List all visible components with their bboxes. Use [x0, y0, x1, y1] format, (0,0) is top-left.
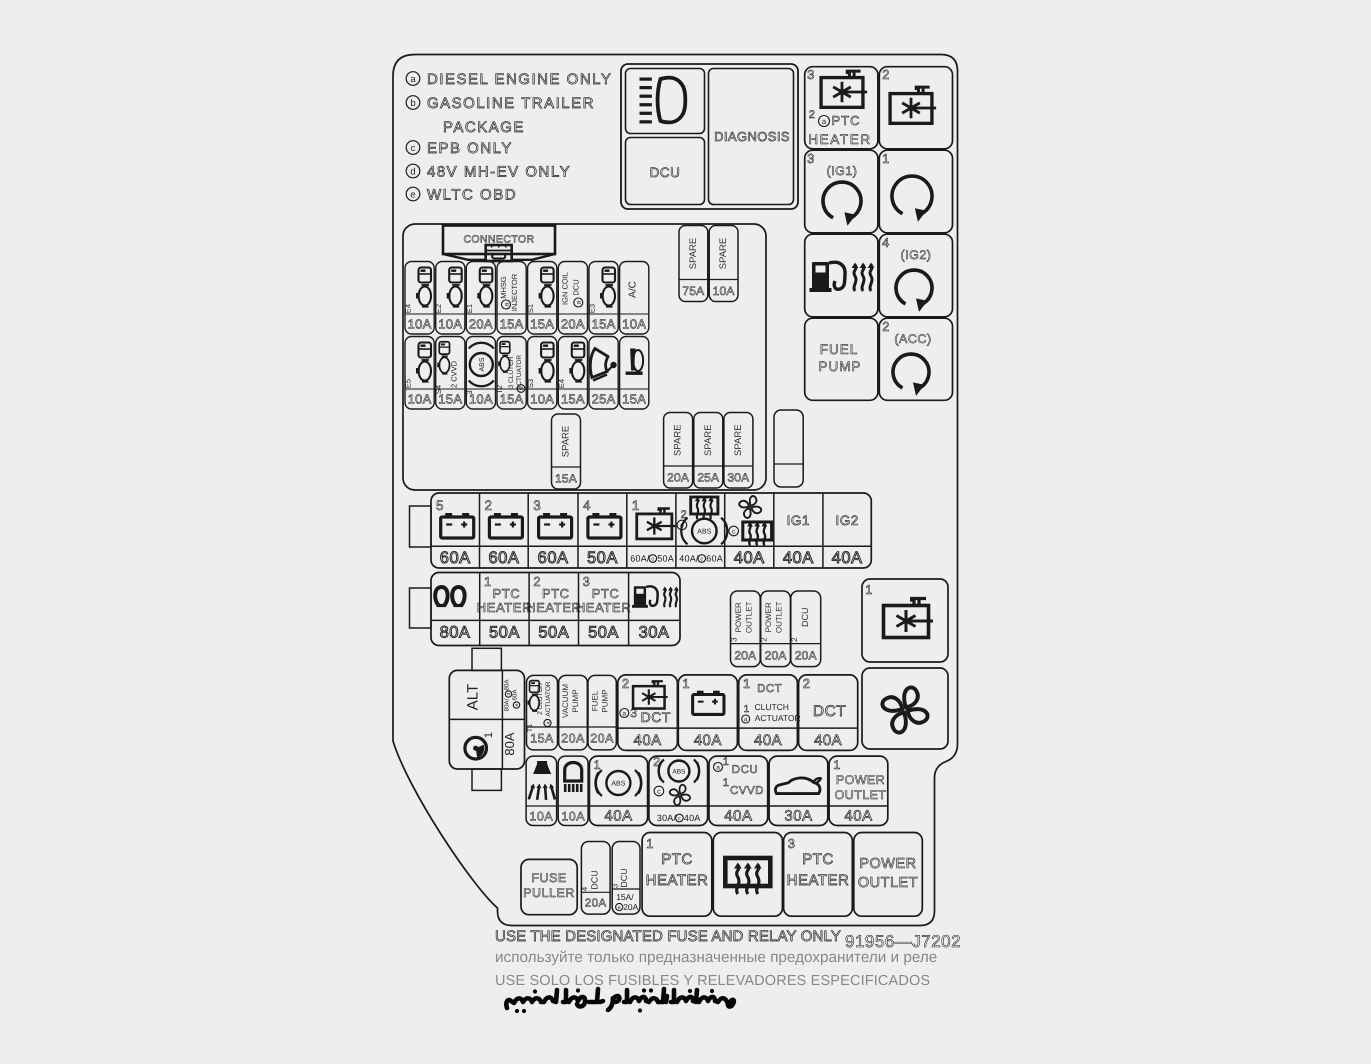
- svg-text:60A: 60A: [488, 549, 519, 567]
- svg-text:15A: 15A: [530, 317, 554, 332]
- svg-text:DCU: DCU: [571, 279, 580, 295]
- svg-text:IG1: IG1: [787, 513, 810, 528]
- svg-text:15A: 15A: [555, 472, 577, 486]
- svg-text:1: 1: [594, 758, 601, 772]
- svg-text:1: 1: [632, 498, 640, 513]
- svg-text:1: 1: [646, 836, 654, 851]
- svg-text:30A: 30A: [639, 624, 670, 642]
- svg-text:SPARE: SPARE: [733, 424, 744, 456]
- svg-text:20A: 20A: [561, 732, 585, 746]
- svg-text:40A: 40A: [783, 549, 814, 567]
- svg-text:HEATER: HEATER: [646, 872, 709, 889]
- svg-text:INJECTOR: INJECTOR: [510, 273, 519, 311]
- svg-text:CONNECTOR: CONNECTOR: [463, 234, 534, 246]
- svg-text:2: 2: [760, 637, 769, 642]
- svg-text:3 CLUTCH: 3 CLUTCH: [508, 356, 515, 388]
- svg-text:MHSG: MHSG: [499, 276, 508, 299]
- svg-text:3: 3: [465, 390, 474, 395]
- svg-text:DCT: DCT: [757, 683, 782, 695]
- svg-text:CLUTCH: CLUTCH: [754, 702, 788, 712]
- svg-text:25A: 25A: [697, 471, 719, 485]
- svg-text:30A/: 30A/: [657, 813, 677, 823]
- svg-text:80A/: 80A/: [504, 698, 511, 711]
- svg-text:20A: 20A: [561, 317, 585, 332]
- svg-text:15A: 15A: [530, 732, 554, 746]
- svg-text:PTC: PTC: [493, 586, 521, 601]
- svg-text:1: 1: [723, 756, 730, 768]
- svg-text:DIESEL ENGINE ONLY: DIESEL ENGINE ONLY: [427, 71, 612, 88]
- svg-text:OUTLET: OUTLET: [744, 601, 753, 633]
- svg-text:3: 3: [630, 706, 637, 720]
- svg-text:PTC: PTC: [802, 851, 834, 868]
- svg-text:40A: 40A: [684, 813, 701, 823]
- svg-text:10A: 10A: [713, 284, 735, 298]
- svg-text:PUMP: PUMP: [818, 359, 861, 374]
- svg-text:3: 3: [533, 498, 541, 513]
- svg-text:ABS: ABS: [479, 357, 486, 371]
- svg-text:40A: 40A: [694, 732, 722, 749]
- svg-text:e: e: [515, 703, 520, 706]
- svg-text:1: 1: [743, 676, 751, 691]
- svg-text:2: 2: [533, 574, 541, 589]
- svg-text:SPARE: SPARE: [718, 238, 729, 270]
- svg-text:T2: T2: [495, 385, 504, 394]
- svg-text:SPARE: SPARE: [703, 424, 714, 456]
- svg-text:ALT: ALT: [465, 684, 482, 710]
- svg-text:GASOLINE TRAILER: GASOLINE TRAILER: [427, 95, 595, 112]
- svg-text:E5: E5: [404, 379, 413, 388]
- svg-text:5: 5: [436, 498, 444, 513]
- svg-text:DCU: DCU: [619, 868, 629, 888]
- svg-text:S4: S4: [434, 385, 443, 394]
- svg-text:80A: 80A: [504, 679, 511, 691]
- svg-text:a: a: [576, 300, 583, 304]
- svg-text:S1: S1: [526, 304, 535, 313]
- svg-text:10A: 10A: [408, 392, 432, 407]
- svg-text:PTC: PTC: [542, 586, 570, 601]
- svg-text:2: 2: [622, 676, 630, 691]
- svg-text:a: a: [716, 764, 720, 771]
- svg-text:ACTUATOR: ACTUATOR: [755, 713, 801, 723]
- svg-text:1: 1: [723, 777, 730, 789]
- svg-text:10A: 10A: [561, 810, 585, 824]
- svg-text:1: 1: [483, 732, 495, 738]
- svg-text:ACTUATOR: ACTUATOR: [545, 681, 552, 716]
- svg-text:E1: E1: [465, 304, 474, 313]
- svg-text:a: a: [622, 710, 626, 717]
- svg-text:e: e: [410, 189, 415, 200]
- svg-text:HEATER: HEATER: [526, 600, 581, 615]
- svg-text:20A: 20A: [590, 732, 614, 746]
- svg-text:40A: 40A: [832, 549, 863, 567]
- svg-text:S3: S3: [526, 379, 535, 388]
- svg-text:10A: 10A: [622, 317, 646, 332]
- svg-text:15A: 15A: [592, 317, 616, 332]
- svg-text:(IG1): (IG1): [827, 164, 858, 178]
- svg-text:60A: 60A: [512, 689, 519, 701]
- svg-text:DCT: DCT: [641, 709, 671, 725]
- svg-text:2 CLUTCH: 2 CLUTCH: [537, 683, 544, 715]
- svg-text:60A: 60A: [538, 549, 569, 567]
- svg-text:T1: T1: [527, 724, 534, 732]
- svg-text:DCT: DCT: [813, 703, 846, 720]
- svg-text:SPARE: SPARE: [561, 426, 572, 458]
- svg-text:c: c: [678, 816, 681, 822]
- svg-text:2: 2: [484, 498, 492, 513]
- svg-text:3: 3: [583, 574, 591, 589]
- svg-text:PTC: PTC: [592, 586, 620, 601]
- svg-text:10A: 10A: [529, 810, 553, 824]
- svg-text:10A: 10A: [530, 392, 554, 407]
- svg-text:PTC: PTC: [832, 113, 861, 128]
- svg-text:1: 1: [882, 151, 890, 166]
- svg-text:80A: 80A: [440, 624, 471, 642]
- svg-text:40A: 40A: [734, 549, 765, 567]
- svg-text:40A: 40A: [724, 808, 752, 825]
- svg-text:(ACC): (ACC): [894, 332, 931, 346]
- svg-text:40A: 40A: [844, 808, 872, 825]
- svg-text:3: 3: [807, 151, 815, 166]
- svg-text:40A: 40A: [604, 808, 632, 825]
- svg-text:60A: 60A: [706, 554, 723, 564]
- svg-text:15A: 15A: [500, 317, 524, 332]
- svg-text:DCU: DCU: [732, 764, 758, 776]
- svg-text:10A: 10A: [408, 317, 432, 332]
- svg-text:2: 2: [882, 67, 890, 82]
- svg-text:E4: E4: [404, 304, 413, 313]
- svg-text:VACUUM: VACUUM: [561, 684, 570, 718]
- svg-text:25A: 25A: [592, 392, 616, 407]
- svg-text:e: e: [618, 905, 621, 911]
- svg-text:c: c: [732, 529, 736, 536]
- svg-text:15A: 15A: [561, 392, 585, 407]
- svg-text:используйте только предназначе: используйте только предназначенные предо…: [495, 949, 937, 966]
- svg-text:POWER: POWER: [859, 856, 916, 872]
- svg-text:c: c: [657, 789, 661, 796]
- svg-text:c: c: [411, 143, 416, 154]
- svg-text:50A: 50A: [489, 624, 520, 642]
- svg-text:20A: 20A: [734, 649, 756, 663]
- svg-text:E3: E3: [588, 304, 597, 313]
- svg-text:50A: 50A: [587, 549, 618, 567]
- svg-text:40A/: 40A/: [679, 554, 699, 564]
- svg-text:PUMP: PUMP: [571, 689, 580, 712]
- svg-text:POWER: POWER: [764, 602, 773, 632]
- svg-text:PUMP: PUMP: [601, 689, 610, 712]
- svg-text:c: c: [700, 557, 703, 563]
- svg-text:20A: 20A: [585, 898, 607, 910]
- svg-text:1: 1: [744, 704, 750, 715]
- svg-text:60A/: 60A/: [630, 554, 650, 564]
- svg-text:2: 2: [803, 676, 811, 691]
- svg-text:E2: E2: [434, 304, 443, 313]
- svg-text:2 CVVD: 2 CVVD: [450, 360, 459, 388]
- svg-text:50A: 50A: [657, 554, 674, 564]
- svg-text:USE THE DESIGNATED FUSE AND RE: USE THE DESIGNATED FUSE AND RELAY ONLY: [495, 928, 841, 945]
- svg-text:ABS: ABS: [672, 768, 686, 775]
- svg-text:30A: 30A: [727, 471, 749, 485]
- svg-text:50A: 50A: [588, 624, 619, 642]
- svg-text:OUTLET: OUTLET: [775, 601, 784, 633]
- svg-text:HEATER: HEATER: [787, 872, 850, 889]
- svg-text:SPARE: SPARE: [673, 424, 684, 456]
- svg-text:a: a: [545, 721, 551, 724]
- svg-text:ABS: ABS: [611, 781, 625, 788]
- svg-text:4: 4: [583, 498, 591, 513]
- svg-text:15A/: 15A/: [616, 892, 634, 902]
- svg-text:60A: 60A: [440, 549, 471, 567]
- svg-text:20A: 20A: [469, 317, 493, 332]
- svg-text:20A: 20A: [623, 902, 638, 912]
- svg-text:1: 1: [865, 582, 873, 597]
- svg-text:50A: 50A: [538, 624, 569, 642]
- svg-text:2: 2: [882, 319, 890, 334]
- svg-text:1: 1: [682, 676, 690, 691]
- svg-text:4: 4: [882, 235, 890, 250]
- svg-text:2: 2: [790, 637, 799, 642]
- svg-text:1: 1: [833, 758, 840, 772]
- svg-text:20A: 20A: [667, 471, 689, 485]
- svg-text:A/C: A/C: [628, 281, 639, 298]
- svg-text:PTC: PTC: [661, 851, 693, 868]
- svg-text:POWER: POWER: [734, 602, 743, 632]
- svg-text:FUEL: FUEL: [591, 690, 600, 711]
- svg-text:ABS: ABS: [697, 529, 711, 536]
- svg-text:3: 3: [611, 883, 620, 888]
- svg-text:PACKAGE: PACKAGE: [443, 119, 525, 136]
- svg-text:15A: 15A: [622, 392, 646, 407]
- svg-text:48V MH-EV ONLY: 48V MH-EV ONLY: [427, 164, 571, 181]
- svg-text:10A: 10A: [438, 317, 462, 332]
- svg-text:WLTC OBD: WLTC OBD: [427, 187, 517, 204]
- svg-text:40A: 40A: [814, 732, 842, 749]
- svg-text:FUSE: FUSE: [531, 871, 566, 885]
- svg-text:DIAGNOSIS: DIAGNOSIS: [714, 129, 790, 144]
- svg-text:EPB ONLY: EPB ONLY: [427, 140, 513, 157]
- svg-text:(IG2): (IG2): [901, 248, 932, 262]
- svg-text:3: 3: [730, 637, 739, 642]
- svg-text:4: 4: [580, 886, 589, 891]
- svg-text:IG2: IG2: [835, 513, 858, 528]
- svg-text:b: b: [410, 98, 415, 109]
- svg-text:a: a: [410, 74, 416, 85]
- svg-text:1: 1: [484, 574, 492, 589]
- svg-text:HEATER: HEATER: [477, 600, 532, 615]
- svg-text:DCU: DCU: [589, 870, 599, 890]
- svg-text:2: 2: [809, 109, 816, 121]
- svg-text:a: a: [822, 117, 827, 126]
- svg-text:PULLER: PULLER: [523, 886, 575, 900]
- svg-text:DCU: DCU: [800, 608, 810, 628]
- svg-text:20A: 20A: [795, 649, 817, 663]
- svg-text:IGN COIL: IGN COIL: [560, 272, 569, 305]
- svg-text:d: d: [410, 166, 415, 177]
- svg-text:40A: 40A: [633, 732, 661, 749]
- svg-text:OUTLET: OUTLET: [858, 875, 918, 891]
- svg-text:USE SOLO LOS FUSIBLES Y RELEVA: USE SOLO LOS FUSIBLES Y RELEVADORES ESPE…: [495, 973, 930, 989]
- svg-text:POWER: POWER: [836, 773, 885, 787]
- svg-text:DCU: DCU: [650, 165, 681, 180]
- svg-text:30A: 30A: [784, 808, 812, 825]
- svg-text:CVVD: CVVD: [730, 785, 764, 797]
- svg-text:80A: 80A: [502, 732, 517, 755]
- svg-text:c: c: [651, 557, 654, 563]
- svg-text:3: 3: [807, 67, 815, 82]
- svg-text:HEATER: HEATER: [808, 132, 871, 147]
- svg-text:E4: E4: [557, 379, 566, 388]
- svg-text:40A: 40A: [754, 732, 782, 749]
- svg-text:SPARE: SPARE: [688, 238, 699, 270]
- svg-text:20A: 20A: [765, 649, 787, 663]
- svg-text:75A: 75A: [682, 284, 704, 298]
- svg-text:3: 3: [788, 836, 796, 851]
- svg-text:FUEL: FUEL: [820, 342, 859, 357]
- svg-text:OUTLET: OUTLET: [835, 788, 887, 802]
- svg-text:HEATER: HEATER: [576, 600, 631, 615]
